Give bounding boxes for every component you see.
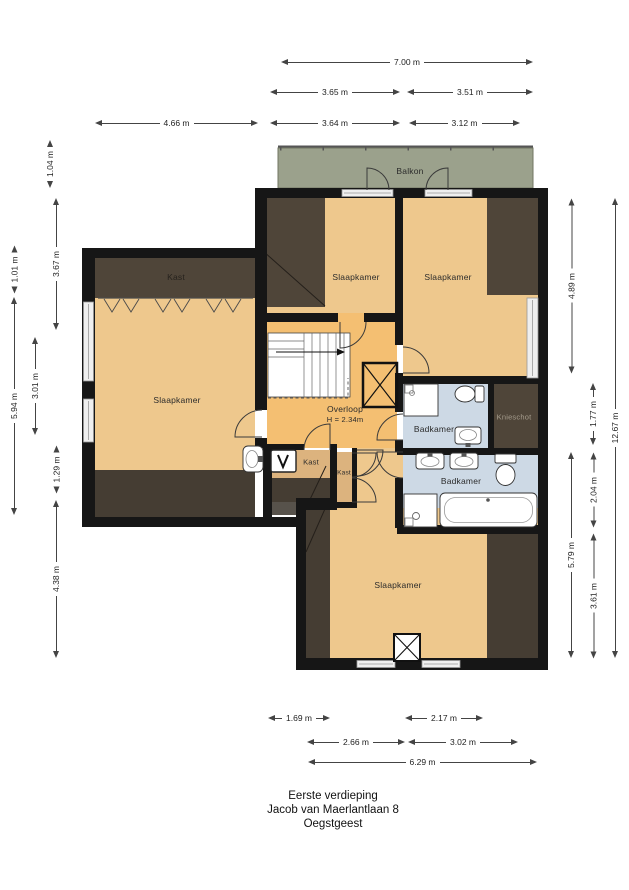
balcony-area [278, 147, 533, 189]
chimney-x-icon [394, 634, 420, 661]
room-kast-2 [337, 452, 352, 502]
closet-slaapkamer-right [487, 198, 538, 295]
bathtub-icon [440, 493, 537, 527]
sink-icon [455, 427, 481, 447]
plan-title-floor: Eerste verdieping [183, 789, 483, 803]
closet-slaapkamer-mid [267, 198, 325, 307]
window-left-2 [84, 399, 94, 442]
balcony-door-window [342, 190, 393, 197]
sink-icon [450, 453, 478, 469]
window-bottom-2 [422, 661, 460, 668]
shower-icon [404, 384, 438, 416]
window-bottom-1 [357, 661, 395, 668]
room-kast-topleft [95, 258, 255, 298]
slope-strip-left [95, 470, 255, 517]
plan-title-city: Oegstgeest [183, 817, 483, 831]
plan-title-address: Jacob van Maerlantlaan 8 [183, 803, 483, 817]
floorplan-drawing [0, 0, 629, 890]
window-right [527, 298, 538, 378]
balcony-door-window [425, 190, 472, 197]
slope-strip-bottom-right [487, 534, 538, 658]
toilet-icon [495, 454, 516, 486]
window-left-1 [84, 302, 94, 381]
ventilation-unit-icon [271, 450, 296, 472]
shower-icon [404, 494, 437, 527]
slope-strip-bottom-left [306, 510, 330, 658]
toilet-icon [455, 386, 484, 402]
room-slaapkamer-left [95, 298, 255, 470]
room-knieschot [493, 382, 538, 450]
staircase-icon [268, 333, 350, 398]
sink-icon [416, 453, 444, 469]
sink-icon [243, 446, 263, 472]
plan-title: Eerste verdieping Jacob van Maerlantlaan… [183, 789, 483, 831]
floorplan-canvas: BalkonKastSlaapkamerSlaapkamerSlaapkamer… [0, 0, 629, 890]
